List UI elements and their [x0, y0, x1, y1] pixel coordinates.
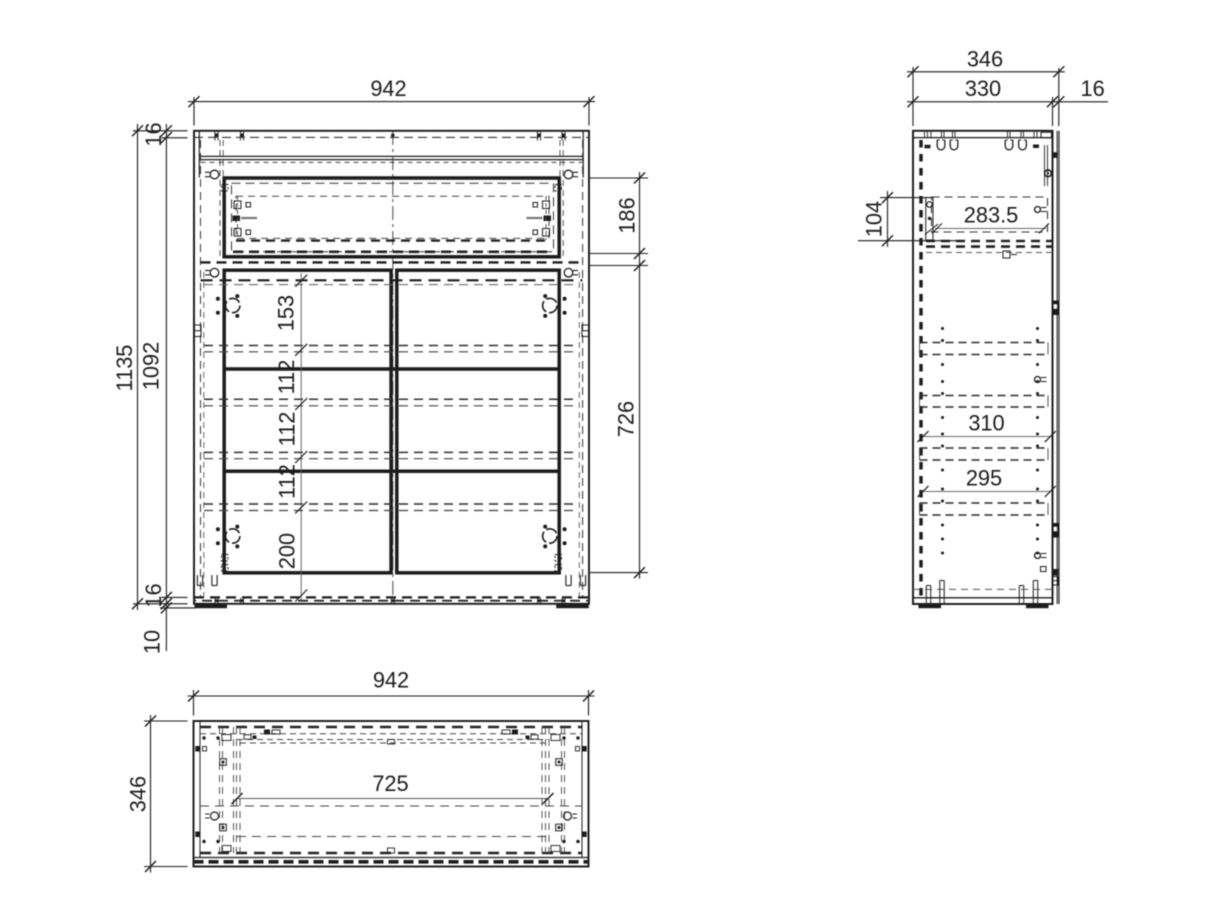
- svg-text:186: 186: [614, 197, 639, 233]
- svg-text:942: 942: [370, 76, 406, 101]
- svg-text:153: 153: [273, 295, 298, 331]
- svg-text:10: 10: [139, 630, 164, 654]
- svg-text:16: 16: [1080, 76, 1104, 101]
- svg-text:1092: 1092: [138, 342, 163, 391]
- svg-text:346: 346: [967, 46, 1003, 71]
- svg-text:330: 330: [965, 76, 1001, 101]
- svg-text:295: 295: [966, 466, 1002, 491]
- svg-text:725: 725: [372, 771, 408, 796]
- svg-text:1135: 1135: [112, 345, 137, 392]
- svg-text:200: 200: [274, 533, 299, 569]
- svg-text:283.5: 283.5: [964, 202, 1019, 227]
- svg-text:942: 942: [373, 667, 409, 692]
- svg-text:16: 16: [141, 583, 166, 607]
- svg-text:346: 346: [125, 776, 150, 812]
- svg-text:112: 112: [274, 360, 299, 395]
- svg-text:726: 726: [613, 401, 638, 437]
- svg-text:104: 104: [861, 201, 886, 237]
- svg-text:310: 310: [968, 411, 1004, 436]
- svg-text:112: 112: [274, 412, 299, 447]
- svg-text:16: 16: [141, 122, 166, 146]
- svg-text:112: 112: [274, 464, 299, 499]
